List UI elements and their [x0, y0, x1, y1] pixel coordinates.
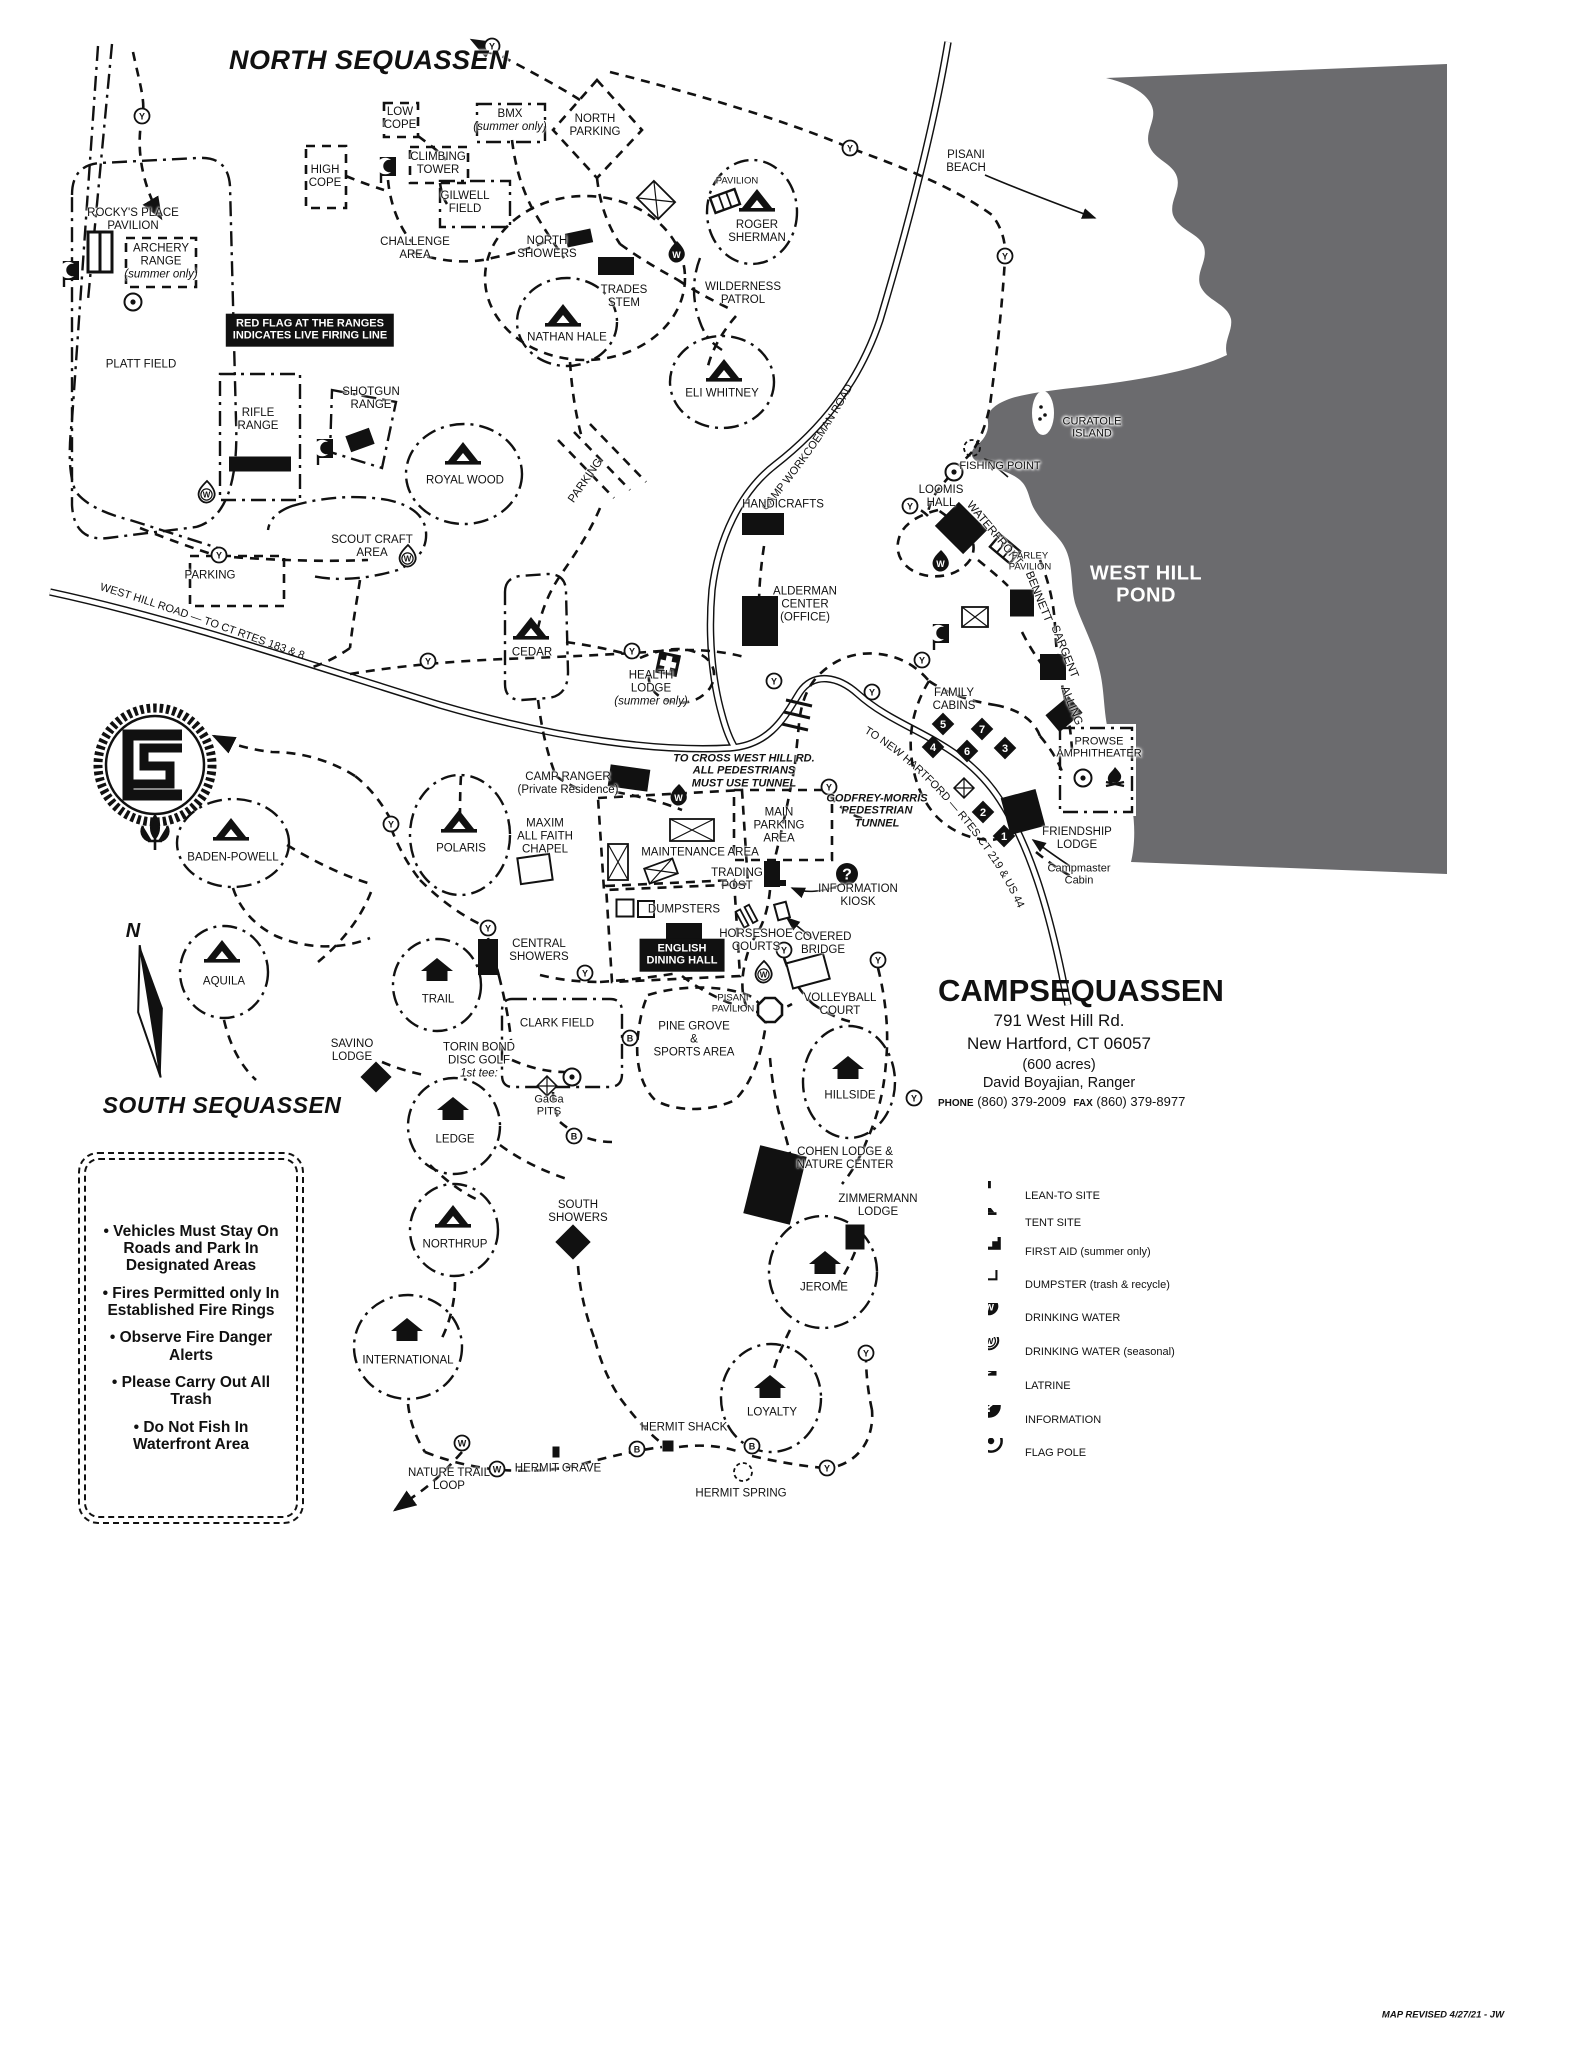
- trail-marker-y: Y: [767, 674, 782, 689]
- map-label-shotgun: SHOTGUNRANGE: [342, 386, 400, 412]
- map-icon-tent: [435, 1205, 471, 1228]
- map-label-dumpsters: DUMPSTERS: [648, 904, 720, 917]
- trail-marker-y: Y: [998, 249, 1013, 264]
- map-icon-bldg: [663, 1441, 674, 1452]
- map-label-loomis: LOOMISHALL: [919, 484, 964, 510]
- svg-text:Y: Y: [869, 687, 875, 697]
- camp-address1: 791 West Hill Rd.: [938, 1011, 1180, 1031]
- map-label-gaga: GaGaPITS: [534, 1094, 563, 1119]
- svg-text:1: 1: [1001, 831, 1007, 843]
- map-icon-flag: [1075, 770, 1092, 787]
- map-icon-xbox: [670, 819, 714, 841]
- map-label-horseshoe: HORSESHOECOURTS: [719, 928, 793, 954]
- map-label-loyalty: LOYALTY: [747, 1407, 797, 1420]
- map-icon-bldg: [229, 457, 291, 472]
- camp-logo: [98, 708, 212, 850]
- firstaid-icon: [988, 1237, 1018, 1267]
- map-icon-bldg: [598, 257, 634, 275]
- map-icon-xbox: [637, 181, 675, 219]
- trail-marker-y: Y: [903, 499, 918, 514]
- map-label-information: INFORMATIONKIOSK: [818, 883, 898, 909]
- svg-text:Y: Y: [875, 955, 881, 965]
- map-icon-hs: [736, 905, 758, 928]
- map-label-maxim: MAXIMALL FAITHCHAPEL: [517, 818, 573, 857]
- tent-icon: [988, 1208, 1018, 1238]
- trail-marker-y: Y: [625, 644, 640, 659]
- svg-text:2: 2: [980, 807, 986, 819]
- map-label-main: MAINPARKINGAREA: [754, 807, 805, 846]
- svg-text:Y: Y: [1002, 251, 1008, 261]
- map-icon-bldg: [553, 1447, 560, 1458]
- svg-text:B: B: [634, 1444, 641, 1454]
- map-label-red-flag-at-the-ranges: RED FLAG AT THE RANGESINDICATES LIVE FIR…: [226, 314, 394, 347]
- latrine-icon: [988, 1371, 1018, 1401]
- legend-item-drinking-water-seasonal: DRINKING WATER (seasonal): [988, 1337, 1175, 1367]
- map-icon-wrect: [774, 902, 790, 921]
- map-label-wilderness: WILDERNESSPATROL: [705, 281, 781, 307]
- west-hill-pond: [972, 64, 1447, 874]
- svg-text:7: 7: [979, 724, 985, 736]
- legend-item-drinking-water: DRINKING WATER: [988, 1303, 1120, 1333]
- svg-text:Y: Y: [824, 1463, 830, 1473]
- map-label-curatole: CURATOLEISLAND: [1063, 416, 1122, 441]
- svg-text:CAMP WORKCOEMAN ROAD: CAMP WORKCOEMAN ROAD: [759, 382, 855, 513]
- map-label-trades: TRADESSTEM: [601, 284, 648, 310]
- camp-address2: New Hartford, CT 06057: [938, 1034, 1180, 1054]
- svg-text:5: 5: [940, 719, 946, 731]
- map-label-fishing-point: FISHING POINT: [959, 460, 1040, 472]
- camp-name: CAMPSEQUASSEN: [938, 975, 1180, 1008]
- info-icon: [988, 1405, 1018, 1435]
- map-label-camp-ranger: CAMP RANGER(Private Residence): [518, 771, 619, 797]
- map-label-jerome: JEROME: [800, 1282, 848, 1295]
- trail-marker-y: Y: [907, 1091, 922, 1106]
- map-icon-wrect: [617, 900, 634, 917]
- waterS-icon: [988, 1337, 1018, 1367]
- map-icon-island: [1032, 391, 1054, 435]
- map-label-pavilion: PAVILION: [716, 177, 758, 188]
- map-label-zimmermann: ZIMMERMANNLODGE: [838, 1193, 917, 1219]
- map-icon-leanto: [391, 1318, 423, 1341]
- map-icon-bldg: [772, 880, 786, 886]
- map-icon-latrine: [930, 624, 949, 650]
- map-icon-tent: [204, 940, 240, 963]
- map-icon-waterS: [199, 481, 215, 503]
- map-icon-tent: [441, 810, 477, 833]
- map-icon-tent: [706, 359, 742, 382]
- map-icon-waterS: [756, 961, 772, 983]
- map-icon-leanto: [421, 958, 453, 981]
- map-icon-bldg: [846, 1225, 865, 1250]
- map-label-roger: ROGERSHERMAN: [728, 219, 786, 245]
- svg-text:Y: Y: [216, 550, 222, 560]
- map-label-cedar: CEDAR: [512, 647, 552, 660]
- svg-text:Y: Y: [629, 646, 635, 656]
- svg-text:Y: Y: [485, 923, 491, 933]
- trail-marker-y: Y: [820, 1461, 835, 1476]
- map-canvas: W W ?: [0, 0, 1583, 2048]
- legend-item-tent-site: TENT SITE: [988, 1208, 1081, 1238]
- map-label-north: NORTHSHOWERS: [517, 235, 576, 261]
- family-cabin-2: 2: [972, 801, 995, 824]
- family-cabin-7: 7: [971, 718, 994, 741]
- compass: [128, 943, 174, 1079]
- map-label-prowse: PROWSEAMPHITHEATER: [1056, 736, 1141, 761]
- map-label-scout-craft: SCOUT CRAFTAREA: [331, 534, 413, 560]
- map-label-north-sequassen: NORTH SEQUASSEN: [229, 45, 509, 75]
- svg-text:Y: Y: [907, 501, 913, 511]
- map-label-nathan-hale: NATHAN HALE: [527, 332, 607, 345]
- map-icon-bldg: [478, 939, 498, 975]
- legend-item-dumpster-trash-recycle: DUMPSTER (trash & recycle): [988, 1270, 1170, 1300]
- trail-marker-y: Y: [859, 1346, 874, 1361]
- map-label-west-hill: WEST HILLPOND: [1090, 563, 1202, 608]
- map-label-central: CENTRALSHOWERS: [509, 938, 568, 964]
- map-label-english: ENGLISHDINING HALL: [640, 939, 725, 972]
- map-icon-bldg: [742, 513, 784, 535]
- family-cabin-5: 5: [932, 713, 955, 736]
- map-icon-bldg: [555, 1224, 590, 1259]
- svg-text:W: W: [493, 1464, 502, 1474]
- rule-item: • Please Carry Out All Trash: [94, 1374, 288, 1409]
- svg-text:Y: Y: [425, 656, 431, 666]
- fax-label: FAX: [1073, 1098, 1092, 1109]
- map-label-to-cross-west-hill-rd: TO CROSS WEST HILL RD.ALL PEDESTRIANSMUS…: [673, 753, 814, 790]
- map-label-rifle: RIFLERANGE: [238, 407, 279, 433]
- map-label-friendship: FRIENDSHIPLODGE: [1042, 826, 1112, 852]
- svg-text:B: B: [571, 1131, 578, 1141]
- svg-text:4: 4: [930, 742, 937, 754]
- dumpster-icon: [988, 1270, 1018, 1300]
- map-label-alderman: ALDERMANCENTER(OFFICE): [773, 586, 837, 625]
- map-label-challenge: CHALLENGEAREA: [380, 236, 450, 262]
- svg-text:Y: Y: [582, 968, 588, 978]
- map-label-pine-grove: PINE GROVE&SPORTS AREA: [654, 1021, 735, 1060]
- legend-item-flag-pole: FLAG POLE: [988, 1438, 1086, 1468]
- trail-marker-y: Y: [843, 141, 858, 156]
- map-icon-dcirc: [734, 1463, 752, 1481]
- map-icon-tent: [213, 818, 249, 841]
- map-label-n: N: [126, 920, 140, 942]
- trail-marker-y: Y: [865, 685, 880, 700]
- map-icon-xdiam: [954, 778, 974, 798]
- svg-text:B: B: [749, 1441, 756, 1451]
- map-label-bmx: BMX(summer only): [473, 108, 546, 134]
- map-icon-wrect: [786, 954, 829, 989]
- camp-acres: (600 acres): [938, 1057, 1180, 1073]
- legend-item-information: INFORMATION: [988, 1405, 1101, 1435]
- svg-text:6: 6: [964, 746, 970, 758]
- map-label-clark-field: CLARK FIELD: [520, 1018, 594, 1031]
- svg-text:Y: Y: [139, 111, 145, 121]
- legend-item-latrine: LATRINE: [988, 1371, 1071, 1401]
- map-label-low: LOWCOPE: [384, 106, 417, 132]
- map-icon-bldg: [345, 428, 374, 453]
- map-icon-leanto: [809, 1251, 841, 1274]
- map-icon-tent: [545, 304, 581, 327]
- trail-marker-y: Y: [135, 109, 150, 124]
- camp-phone-fax: PHONE (860) 379-2009 FAX (860) 379-8977: [938, 1094, 1180, 1109]
- svg-text:B: B: [627, 1033, 634, 1043]
- svg-text:W: W: [458, 1438, 467, 1448]
- rule-item: • Fires Permitted only In Established Fi…: [94, 1285, 288, 1320]
- road-label-west-hill: WEST HILL ROAD — TO CT RTES 183 & 8: [98, 581, 306, 662]
- map-label-hermit-spring: HERMIT SPRING: [695, 1488, 786, 1501]
- map-label-pisani: PISANIBEACH: [946, 149, 986, 175]
- svg-text:Y: Y: [847, 143, 853, 153]
- map-icon-xbox: [962, 607, 988, 627]
- map-label-trading: TRADINGPOST: [711, 867, 763, 893]
- map-label-rocky-s-place: ROCKY'S PLACEPAVILION: [87, 207, 179, 233]
- trail-marker-b: B: [567, 1129, 582, 1144]
- rule-item: • Vehicles Must Stay On Roads and Park I…: [94, 1223, 288, 1275]
- map-label-torin-bond: TORIN BONDDISC GOLF1st tee:: [443, 1042, 515, 1081]
- svg-text:Y: Y: [826, 782, 832, 792]
- camp-ranger-name: David Boyajian, Ranger: [938, 1075, 1180, 1091]
- svg-text:Y: Y: [771, 676, 777, 686]
- svg-text:Y: Y: [388, 819, 394, 829]
- map-label-hermit-shack: HERMIT SHACK: [641, 1422, 728, 1435]
- map-icon-bldg: [360, 1061, 391, 1092]
- map-label-aquila: AQUILA: [203, 976, 245, 989]
- map-label-south-sequassen: SOUTH SEQUASSEN: [103, 1093, 342, 1119]
- map-label-health: HEALTHLODGE(summer only): [614, 670, 687, 709]
- map-label-trail: TRAIL: [422, 994, 455, 1007]
- map-label-platt-field: PLATT FIELD: [106, 359, 177, 372]
- map-label-international: INTERNATIONAL: [362, 1355, 453, 1368]
- map-label-savino: SAVINOLODGE: [331, 1038, 374, 1064]
- rule-item: • Do Not Fish In Waterfront Area: [94, 1419, 288, 1454]
- map-label-hermit-grave: HERMIT GRAVE: [515, 1463, 601, 1476]
- fax-number: (860) 379-8977: [1096, 1094, 1185, 1109]
- svg-text:Y: Y: [919, 655, 925, 665]
- map-label-high: HIGHCOPE: [309, 164, 342, 190]
- waterB-icon: [988, 1303, 1018, 1333]
- map-icon-tent: [445, 442, 481, 465]
- phone-label: PHONE: [938, 1098, 974, 1109]
- map-icon-xbox: [644, 858, 678, 883]
- map-label-eli-whitney: ELI WHITNEY: [685, 388, 758, 401]
- trail-marker-y: Y: [578, 966, 593, 981]
- rules-box: • Vehicles Must Stay On Roads and Park I…: [78, 1152, 304, 1524]
- map-icon-flag: [564, 1069, 581, 1086]
- map-icon-latrine: [60, 261, 79, 287]
- map-label-south: SOUTHSHOWERS: [548, 1199, 607, 1225]
- camp-map-page: W W ?: [0, 0, 1583, 2048]
- trail-marker-y: Y: [384, 817, 399, 832]
- map-label-baden-powell: BADEN-POWELL: [187, 852, 278, 865]
- map-label-climbing: CLIMBINGTOWER: [410, 151, 466, 177]
- trail-marker-y: Y: [915, 653, 930, 668]
- map-icon-leanto: [437, 1097, 469, 1120]
- map-label-parking: PARKING: [185, 570, 236, 583]
- map-icon-xbox: [608, 844, 628, 880]
- map-icon-tent: [513, 617, 549, 640]
- leanto-icon: [988, 1181, 1018, 1211]
- map-label-cohen-lodge: COHEN LODGE &NATURE CENTER: [797, 1146, 894, 1172]
- map-icon-pav2: [88, 232, 112, 272]
- map-icon-tent: [739, 189, 775, 212]
- trail-marker-y: Y: [871, 953, 886, 968]
- trail-marker-w: W: [455, 1436, 470, 1451]
- map-icon-wrect: [517, 854, 552, 884]
- map-label-volleyball: VOLLEYBALLCOURT: [804, 992, 877, 1018]
- camp-info-block: CAMPSEQUASSEN 791 West Hill Rd. New Hart…: [938, 975, 1180, 1109]
- trail-marker-y: Y: [421, 654, 436, 669]
- svg-text:Y: Y: [863, 1348, 869, 1358]
- legend-item-lean-to-site: LEAN-TO SITE: [988, 1181, 1100, 1211]
- map-label-polaris: POLARIS: [436, 843, 486, 856]
- map-icon-latrine: [377, 157, 396, 183]
- trail-marker-b: B: [745, 1439, 760, 1454]
- map-icon-waterB: [669, 241, 685, 263]
- svg-text:Y: Y: [911, 1093, 917, 1103]
- map-label-gilwell: GILWELLFIELD: [441, 190, 490, 216]
- map-label-royal-wood: ROYAL WOOD: [426, 475, 504, 488]
- map-label-family: FAMILYCABINS: [933, 687, 976, 713]
- map-icon-oct: [758, 998, 782, 1022]
- map-icon-waterB: [933, 550, 949, 572]
- map-label-hillside: HILLSIDE: [824, 1090, 875, 1103]
- map-label-godfrey-morris: GODFREY-MORRISPEDESTRIANTUNNEL: [826, 793, 927, 830]
- map-label-north: NORTHPARKING: [570, 113, 621, 139]
- trail-marker-w: W: [490, 1462, 505, 1477]
- phone-number: (860) 379-2009: [977, 1094, 1066, 1109]
- map-icon-flag: [125, 294, 142, 311]
- map-label-northrup: NORTHRUP: [423, 1239, 488, 1252]
- map-icon-latrine: [314, 439, 333, 465]
- flag-icon: [988, 1438, 1018, 1468]
- trail-marker-y: Y: [481, 921, 496, 936]
- map-icon-leanto: [832, 1056, 864, 1079]
- trail-marker-b: B: [623, 1031, 638, 1046]
- map-label-maintenance-area: MAINTENANCE AREA: [641, 847, 759, 860]
- family-cabin-3: 3: [994, 737, 1017, 760]
- map-label-handicrafts: HANDICRAFTS: [742, 499, 824, 512]
- map-label-archery: ARCHERYRANGE(summer only): [124, 243, 197, 282]
- map-label-covered: COVEREDBRIDGE: [795, 931, 852, 957]
- map-label-ledge: LEDGE: [436, 1134, 475, 1147]
- svg-text:3: 3: [1002, 743, 1008, 755]
- svg-text:WEST HILL ROAD — TO CT RTES 18: WEST HILL ROAD — TO CT RTES 183 & 8: [98, 581, 306, 662]
- trail-marker-y: Y: [212, 548, 227, 563]
- trail-marker-b: B: [630, 1442, 645, 1457]
- legend-item-first-aid-summer-only: FIRST AID (summer only): [988, 1237, 1151, 1267]
- map-icon-bldg: [666, 923, 702, 939]
- map-label-pisani: PISANIPAVILION: [712, 993, 754, 1014]
- map-label-campmaster: CampmasterCabin: [1048, 863, 1111, 888]
- map-label-farley: FARLEYPAVILION: [1009, 551, 1051, 572]
- map-icon-info: [836, 863, 858, 885]
- map-label-map-revised-4-27-21-jw: MAP REVISED 4/27/21 - JW: [1382, 2011, 1504, 2022]
- map-icon-leanto: [754, 1375, 786, 1398]
- map-label-nature-trail: NATURE TRAILLOOP: [408, 1467, 490, 1493]
- road-label-workcoeman: CAMP WORKCOEMAN ROAD: [759, 382, 855, 513]
- map-icon-stripe: [710, 189, 740, 213]
- rule-item: • Observe Fire Danger Alerts: [94, 1329, 288, 1364]
